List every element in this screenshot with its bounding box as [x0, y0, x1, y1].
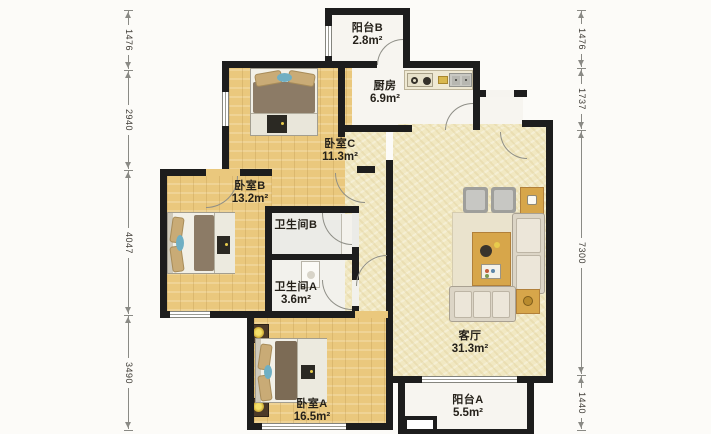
bed-duvet — [194, 215, 214, 271]
bed-throw — [277, 73, 292, 82]
wall-segment — [398, 383, 405, 434]
wall-segment — [338, 125, 412, 132]
room-label-bedroom-a: 卧室A 16.5m² — [272, 398, 352, 425]
room-label-bath-b: 卫生间B — [258, 219, 334, 232]
wall-segment — [403, 8, 410, 68]
wall-segment — [247, 311, 254, 430]
dimension-segment-left-3: 4047 — [128, 171, 129, 314]
room-name: 厨房 — [345, 80, 425, 93]
dimension-segment-right-3: 7300 — [581, 131, 582, 374]
counter-item — [438, 76, 448, 84]
bed-bedroom-b — [167, 212, 235, 274]
room-area: 6.9m² — [345, 93, 425, 107]
room-label-bedroom-c: 卧室C 11.3m² — [300, 138, 380, 165]
sofa — [449, 286, 516, 322]
dimension-segment-right-4: 1440 — [581, 376, 582, 429]
tv-cabinet — [267, 115, 287, 133]
room-name: 卧室C — [300, 138, 380, 151]
bed-throw — [264, 365, 272, 379]
window — [170, 311, 210, 318]
wall-segment — [522, 120, 553, 127]
bed-bedroom-a — [255, 338, 327, 403]
coffee-table — [472, 232, 511, 286]
wall-segment — [403, 61, 480, 68]
side-table — [516, 289, 540, 314]
dimension-value: 4047 — [124, 227, 134, 257]
wall-segment — [160, 169, 167, 318]
room-label-bath-a: 卫生间A 3.6m² — [256, 281, 336, 308]
window — [222, 92, 229, 126]
dimension-value: 7300 — [577, 237, 587, 267]
tv-cabinet — [217, 236, 230, 254]
wall-segment — [386, 160, 393, 430]
dimension-value: 1440 — [577, 387, 587, 417]
wall-segment — [357, 166, 375, 173]
dimension-value: 2940 — [124, 105, 134, 135]
room-label-kitchen: 厨房 6.9m² — [345, 80, 425, 107]
wall-segment — [325, 61, 377, 68]
wall-segment — [265, 206, 359, 213]
dimension-value: 1476 — [124, 25, 134, 55]
room-name: 阳台A — [428, 394, 508, 407]
tv-cabinet — [301, 365, 315, 379]
sink — [449, 73, 472, 87]
armchair — [463, 187, 488, 213]
dimension-segment-right-1: 1476 — [581, 11, 582, 67]
doorway-gap — [355, 311, 388, 318]
dimension-segment-right-2: 1737 — [581, 69, 582, 129]
doorway-gap — [206, 169, 240, 176]
dimension-value: 3490 — [124, 357, 134, 387]
floor-plan: 阳台B 2.8m² 厨房 6.9m² 卧室C 11.3m² 卧室B 13.2m²… — [0, 0, 711, 434]
doorway-gap — [352, 213, 359, 247]
bed-bedroom-c — [250, 68, 318, 136]
room-name: 卧室A — [272, 398, 352, 411]
room-name: 阳台B — [332, 22, 403, 35]
room-name: 卫生间A — [256, 281, 336, 294]
room-label-balcony-a: 阳台A 5.5m² — [428, 394, 508, 421]
wall-segment — [398, 429, 534, 434]
room-area: 2.8m² — [332, 35, 403, 49]
dimension-segment-left-4: 3490 — [128, 316, 129, 429]
doorway-gap-entry — [486, 90, 514, 97]
bed-duvet — [275, 341, 297, 400]
room-area: 16.5m² — [272, 411, 352, 425]
wall-segment — [527, 376, 534, 434]
wall-segment — [325, 8, 410, 15]
room-area: 11.3m² — [300, 151, 380, 165]
wall-segment — [546, 120, 553, 383]
room-area: 13.2m² — [210, 193, 290, 207]
room-label-bedroom-b: 卧室B 13.2m² — [210, 180, 290, 207]
armchair — [491, 187, 516, 213]
room-label-living: 客厅 31.3m² — [430, 330, 510, 357]
wall-segment — [265, 254, 359, 260]
sliding-door-balcony-a — [422, 376, 517, 383]
room-area: 3.6m² — [256, 294, 336, 308]
dimension-segment-left-1: 1476 — [128, 11, 129, 69]
dimension-value: 1737 — [577, 84, 587, 114]
room-area: 31.3m² — [430, 343, 510, 357]
bed-duvet — [253, 82, 315, 113]
dimension-segment-left-2: 2940 — [128, 71, 129, 169]
room-name: 客厅 — [430, 330, 510, 343]
side-table — [520, 187, 544, 214]
room-name: 卫生间B — [258, 219, 334, 232]
bed-throw — [176, 235, 184, 251]
window — [325, 26, 332, 56]
room-name: 卧室B — [210, 180, 290, 193]
wall-segment — [386, 376, 422, 383]
wall-segment — [222, 61, 332, 68]
bed-pillow — [257, 374, 273, 401]
dimension-value: 1476 — [577, 24, 587, 54]
room-label-balcony-b: 阳台B 2.8m² — [332, 22, 403, 49]
sofa-chaise — [512, 213, 545, 294]
room-area: 5.5m² — [428, 407, 508, 421]
